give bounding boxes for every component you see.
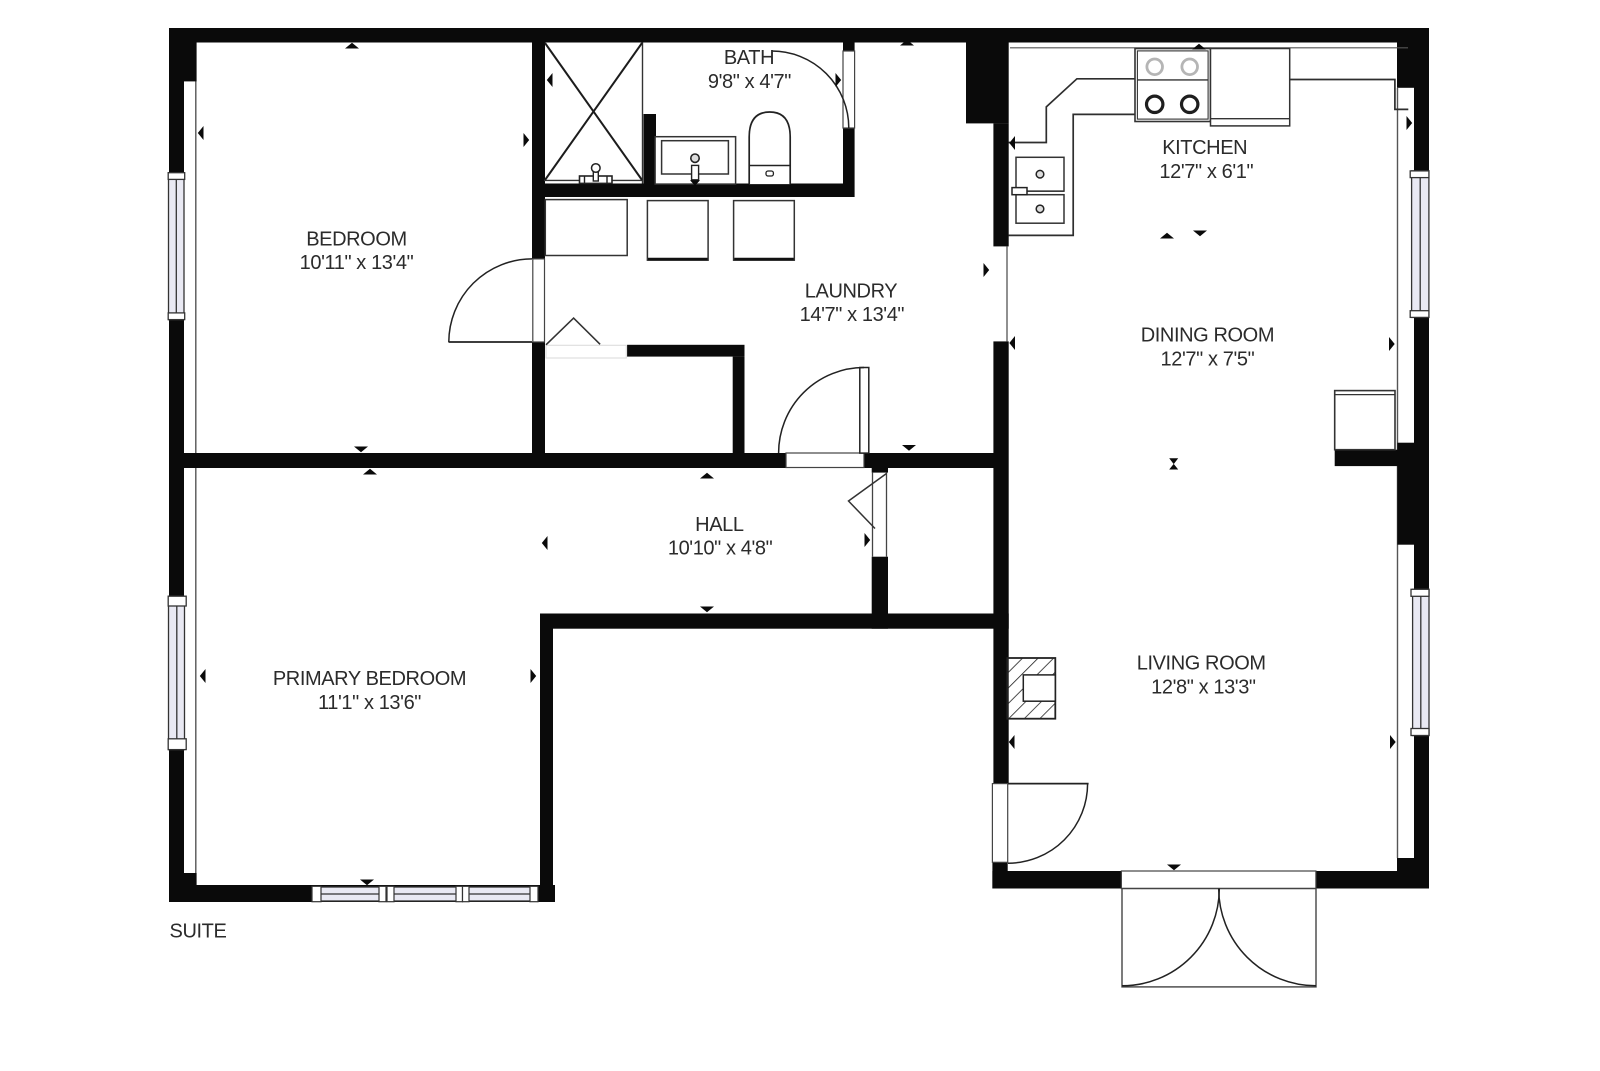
svg-text:DINING ROOM: DINING ROOM xyxy=(1141,325,1274,347)
svg-text:PRIMARY BEDROOM: PRIMARY BEDROOM xyxy=(273,668,466,690)
svg-text:12'7" x 6'1": 12'7" x 6'1" xyxy=(1159,161,1253,183)
svg-text:12'7" x 7'5": 12'7" x 7'5" xyxy=(1161,349,1255,371)
svg-text:BEDROOM: BEDROOM xyxy=(306,229,407,251)
svg-text:LIVING ROOM: LIVING ROOM xyxy=(1137,652,1266,674)
svg-text:10'11" x 13'4": 10'11" x 13'4" xyxy=(300,252,414,274)
svg-text:SUITE: SUITE xyxy=(170,921,227,943)
svg-text:12'8" x 13'3": 12'8" x 13'3" xyxy=(1151,677,1256,699)
svg-text:11'1" x 13'6": 11'1" x 13'6" xyxy=(318,692,421,714)
svg-text:14'7" x 13'4": 14'7" x 13'4" xyxy=(800,304,905,326)
svg-text:HALL: HALL xyxy=(695,514,744,536)
svg-text:10'10" x 4'8": 10'10" x 4'8" xyxy=(668,538,773,560)
svg-text:9'8" x 4'7": 9'8" x 4'7" xyxy=(708,71,791,93)
svg-text:KITCHEN: KITCHEN xyxy=(1162,137,1247,159)
svg-text:BATH: BATH xyxy=(724,47,774,69)
svg-text:LAUNDRY: LAUNDRY xyxy=(805,280,897,302)
